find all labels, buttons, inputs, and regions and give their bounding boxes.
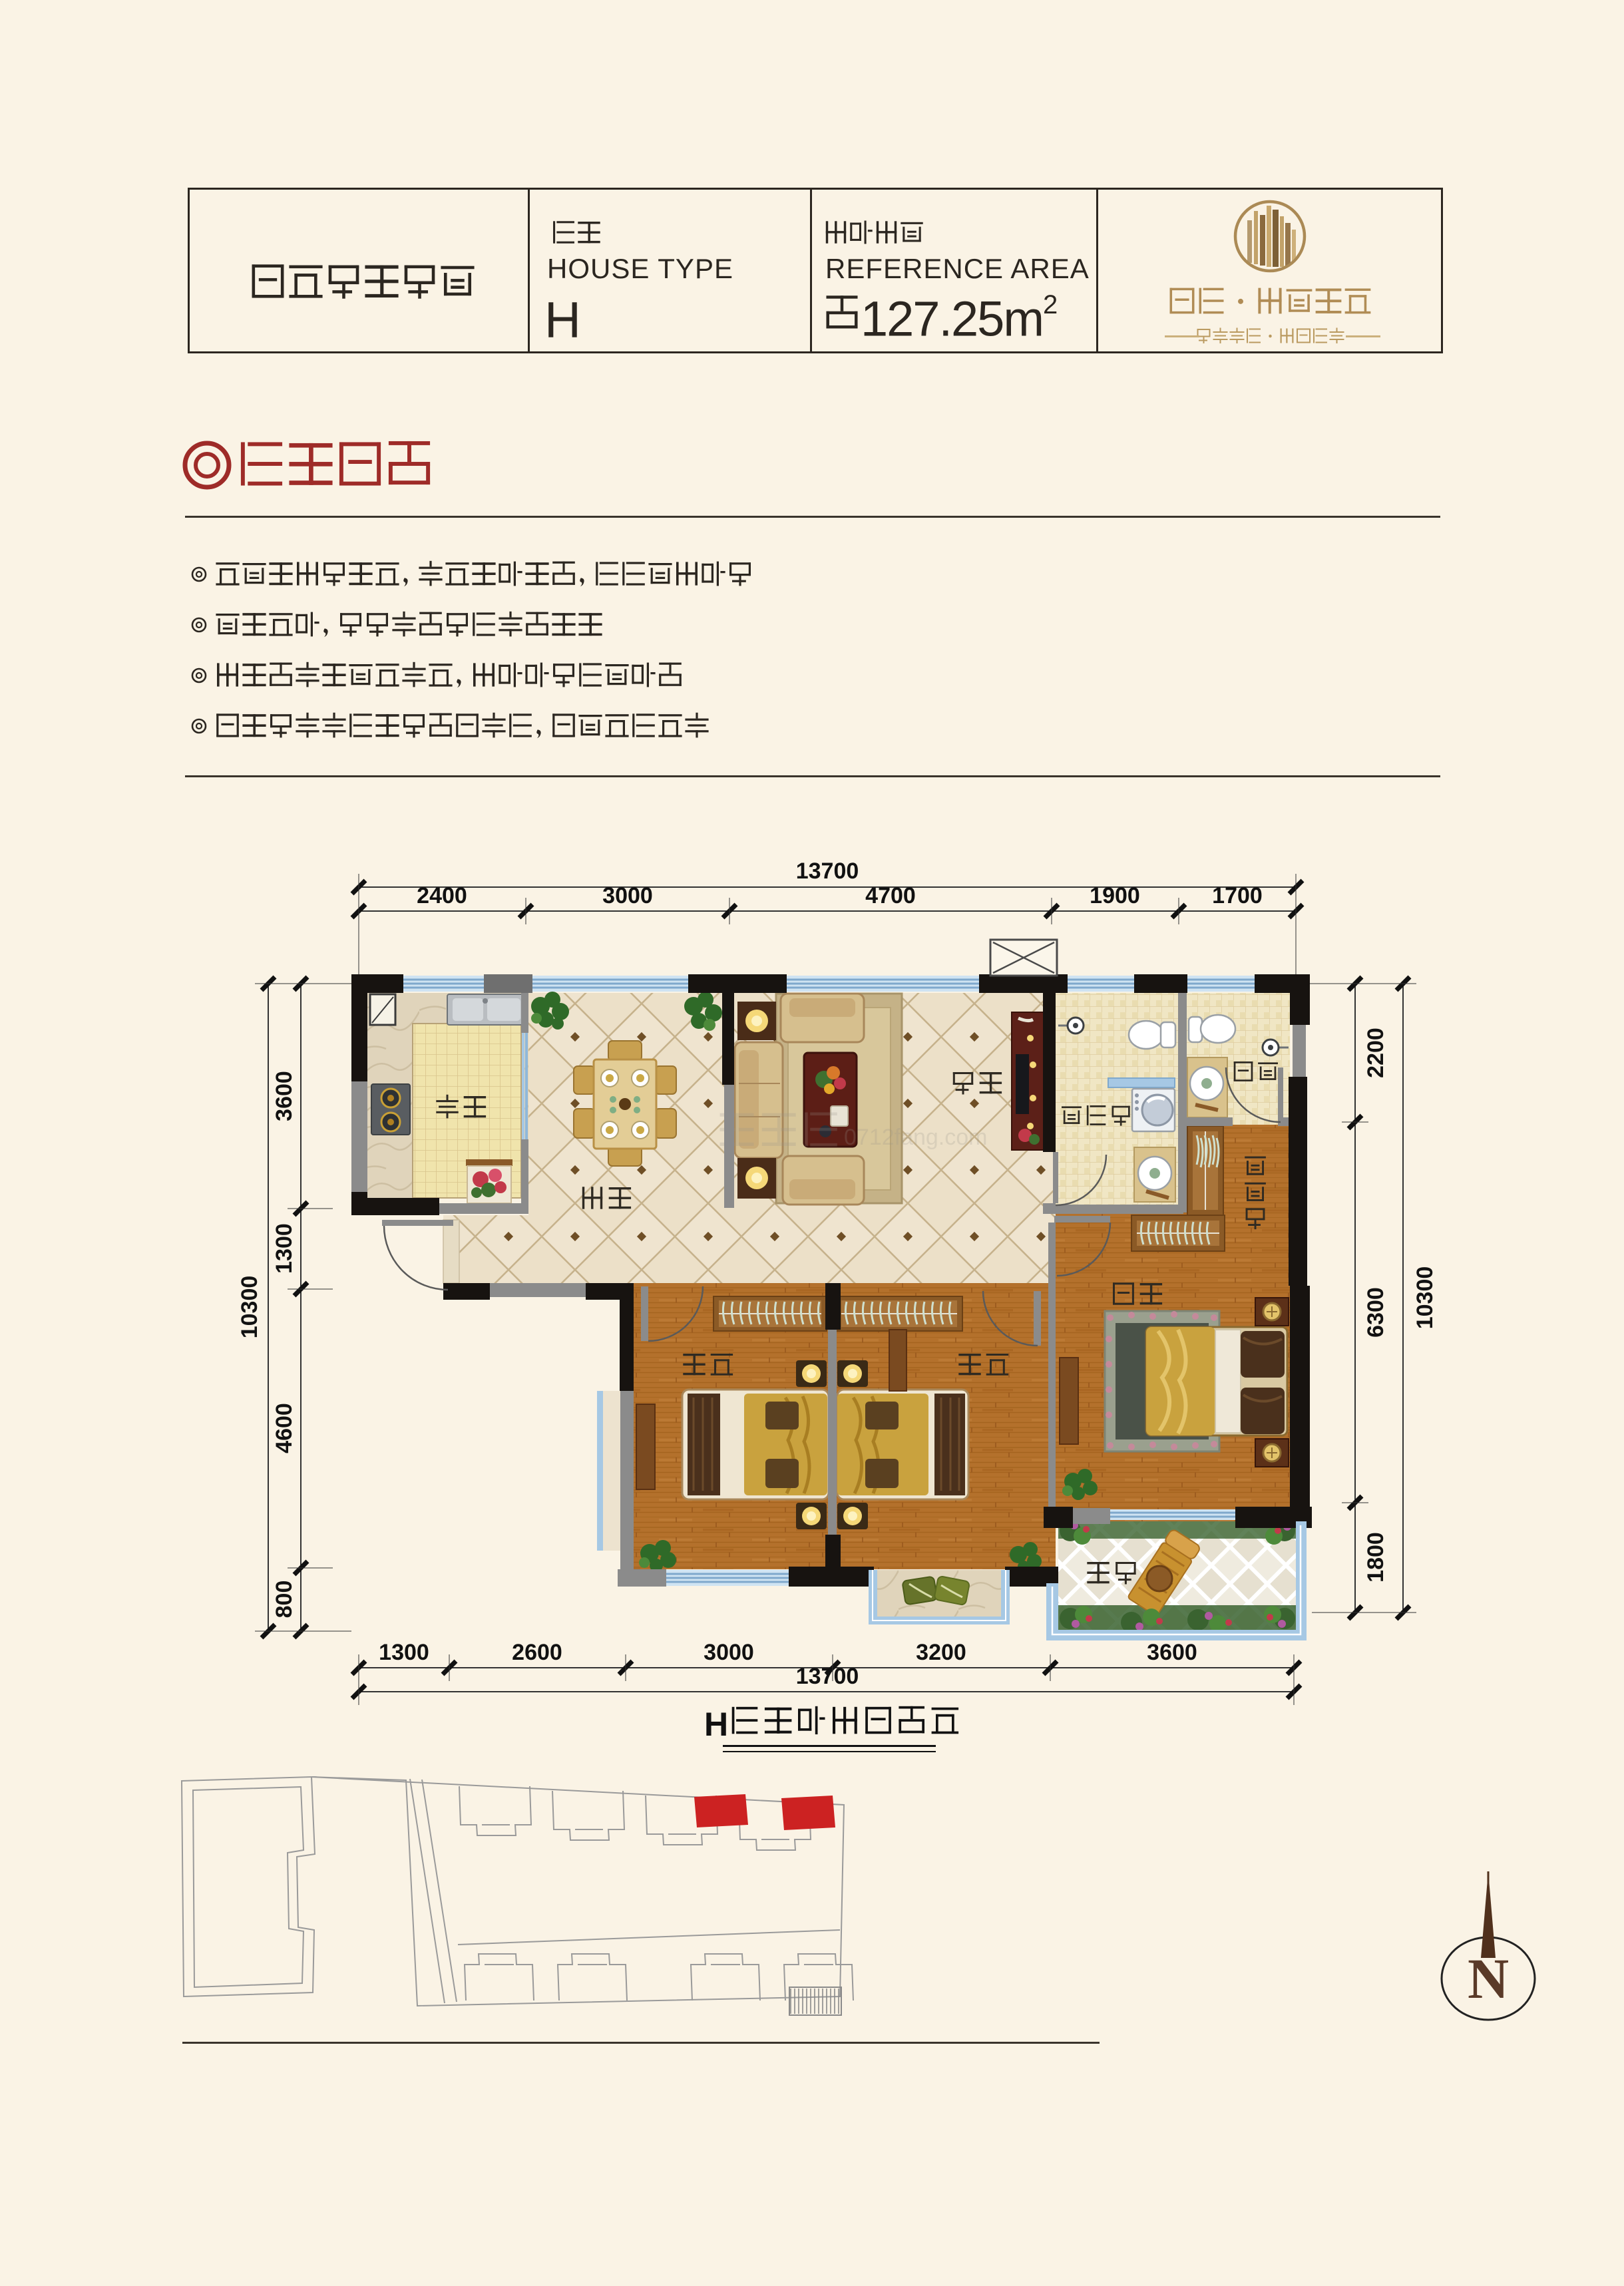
svg-text:3000: 3000	[704, 1640, 754, 1665]
svg-text:3200: 3200	[916, 1640, 966, 1665]
svg-text:13700: 13700	[796, 858, 859, 884]
svg-text:0712fang.com: 0712fang.com	[844, 1125, 988, 1150]
svg-text:2400: 2400	[417, 883, 467, 908]
svg-text:10300: 10300	[1412, 1266, 1438, 1330]
svg-text:4700: 4700	[865, 883, 916, 908]
svg-text:2200: 2200	[1363, 1028, 1388, 1078]
svg-text:10300: 10300	[237, 1276, 262, 1339]
svg-text:4600: 4600	[272, 1403, 297, 1453]
svg-text:3600: 3600	[272, 1071, 297, 1121]
svg-text:N: N	[1468, 1947, 1509, 2010]
svg-text:3600: 3600	[1147, 1640, 1197, 1665]
svg-text:2600: 2600	[512, 1640, 562, 1665]
svg-text:1700: 1700	[1212, 883, 1263, 908]
svg-text:1900: 1900	[1090, 883, 1140, 908]
svg-text:H: H	[704, 1706, 728, 1743]
svg-text:6300: 6300	[1363, 1287, 1388, 1338]
svg-text:1300: 1300	[379, 1640, 429, 1665]
svg-text:1800: 1800	[1363, 1532, 1388, 1583]
svg-text:3000: 3000	[602, 883, 653, 908]
svg-text:13700: 13700	[796, 1664, 859, 1689]
svg-text:800: 800	[272, 1581, 297, 1619]
svg-text:1300: 1300	[272, 1223, 297, 1274]
